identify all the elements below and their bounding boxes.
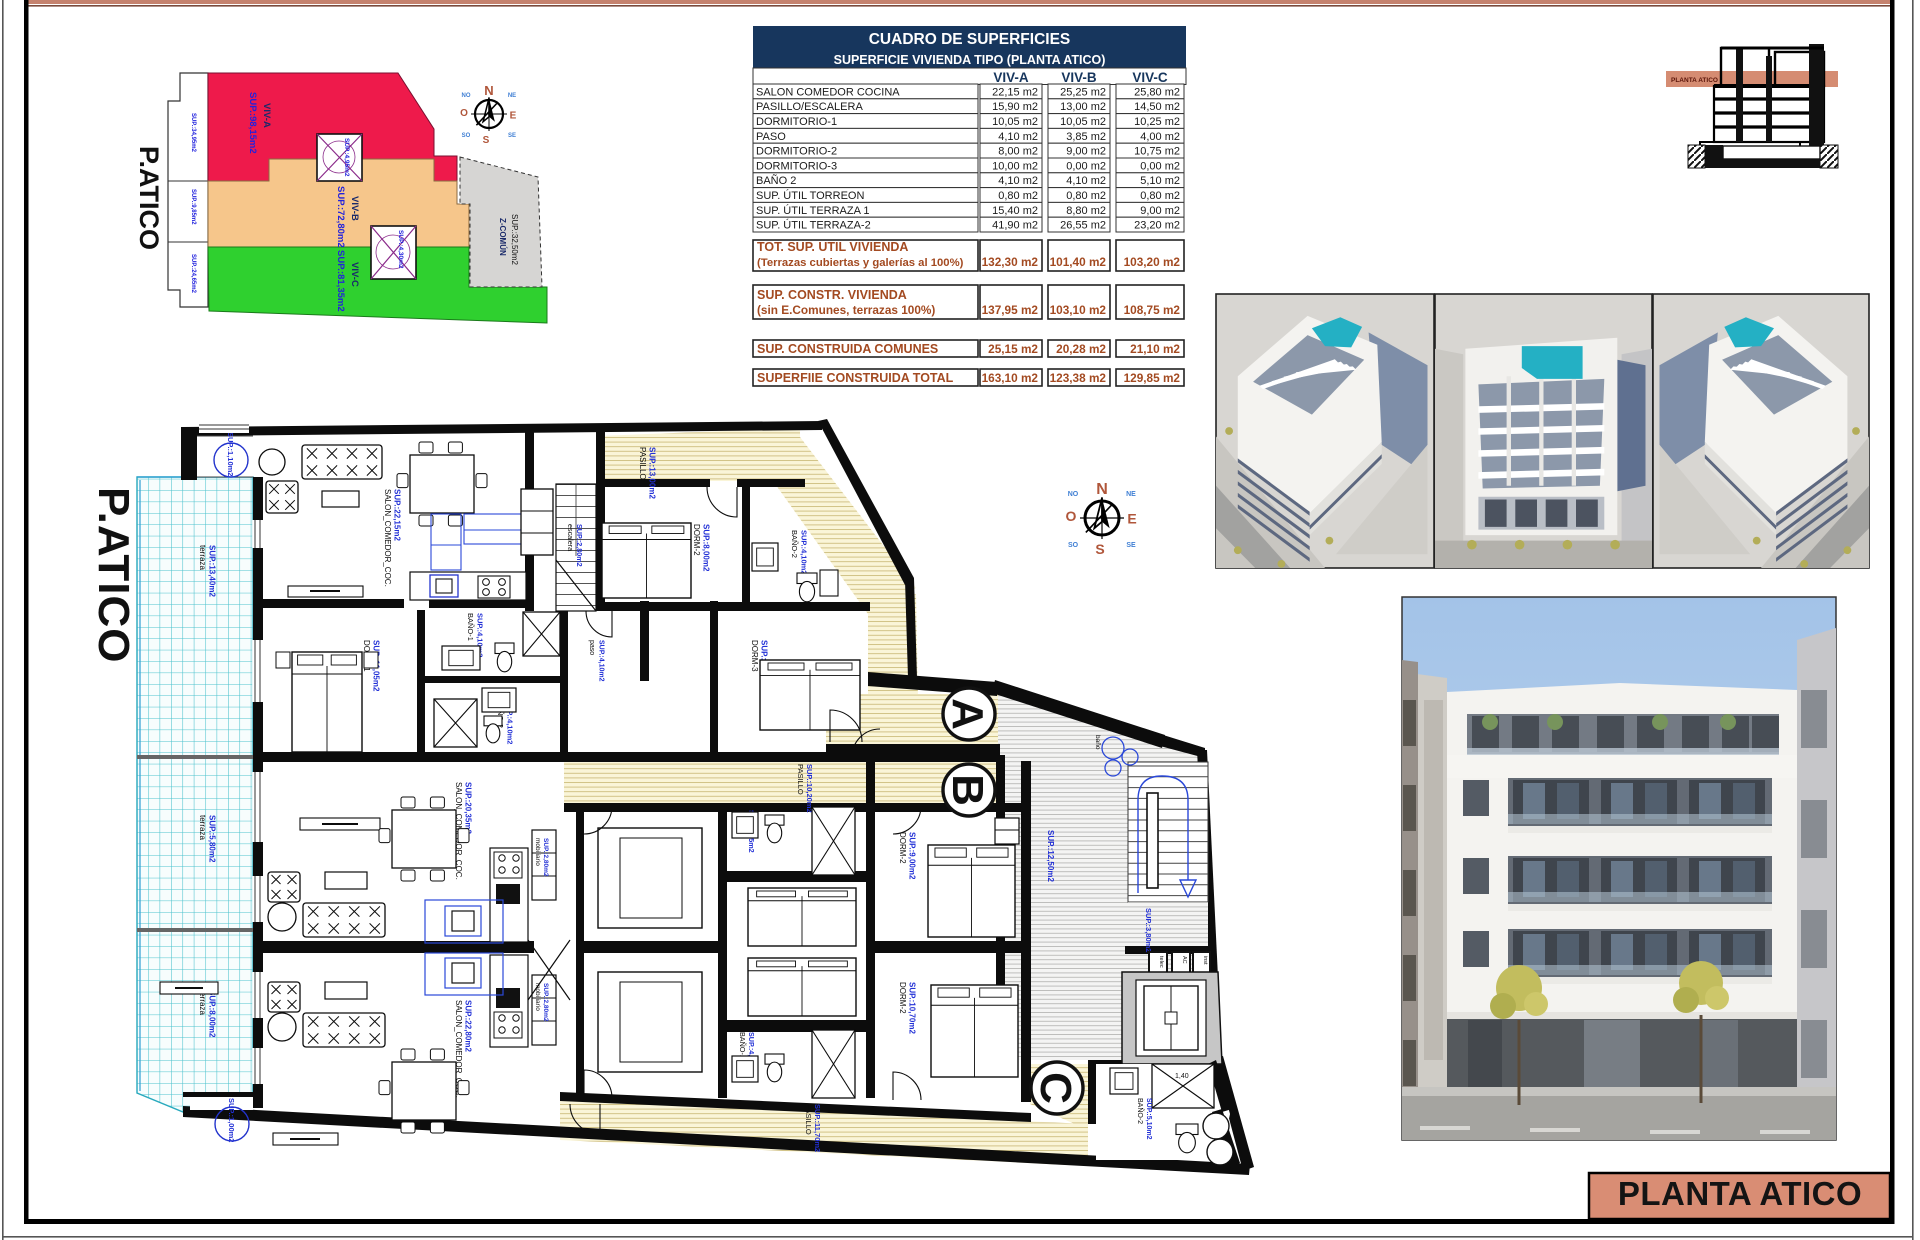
svg-text:SALON COMEDOR COCINA: SALON COMEDOR COCINA [756, 86, 900, 98]
svg-text:9,00 m2: 9,00 m2 [1066, 146, 1106, 158]
svg-text:SUP.:34,95m2: SUP.:34,95m2 [190, 113, 196, 153]
svg-text:26,55 m2: 26,55 m2 [1060, 220, 1106, 232]
svg-text:DORM-3: DORM-3 [750, 640, 759, 672]
svg-text:DORM-2: DORM-2 [898, 982, 907, 1014]
svg-text:SUP.:9,00m2: SUP.:9,00m2 [908, 832, 917, 880]
svg-text:25,25 m2: 25,25 m2 [1060, 86, 1106, 98]
svg-text:O: O [1066, 508, 1077, 524]
svg-text:VIV-A: VIV-A [993, 70, 1029, 85]
svg-text:3,85 m2: 3,85 m2 [1066, 131, 1106, 143]
svg-text:VIV-C: VIV-C [1132, 70, 1168, 85]
svg-text:SUP.:98,15m2: SUP.:98,15m2 [247, 92, 258, 154]
svg-text:SUP. CONSTR. VIVIENDA: SUP. CONSTR. VIVIENDA [757, 288, 907, 302]
svg-text:DORMITORIO-2: DORMITORIO-2 [756, 146, 837, 158]
svg-text:25,15 m2: 25,15 m2 [988, 342, 1038, 356]
svg-text:4,10 m2: 4,10 m2 [1066, 175, 1106, 187]
svg-text:SUP.:1,10m2: SUP.:1,10m2 [226, 432, 235, 476]
svg-text:SUP.:24,65m2: SUP.:24,65m2 [190, 254, 196, 294]
svg-text:SUP.:9,85m2: SUP.:9,85m2 [190, 189, 196, 225]
svg-text:SUP.:12,50m2: SUP.:12,50m2 [1046, 830, 1055, 882]
svg-text:SUP.:5,80m2: SUP.:5,80m2 [208, 815, 217, 863]
svg-text:terraza: terraza [198, 545, 207, 570]
svg-text:BAÑO-1: BAÑO-1 [466, 613, 475, 641]
svg-text:S: S [483, 135, 490, 146]
svg-text:VIV-A: VIV-A [261, 103, 272, 128]
svg-text:10,25 m2: 10,25 m2 [1134, 116, 1180, 128]
svg-text:inst: inst [1202, 956, 1208, 965]
svg-text:9,00 m2: 9,00 m2 [1140, 205, 1180, 217]
svg-text:129,85 m2: 129,85 m2 [1124, 371, 1181, 385]
svg-text:14,50 m2: 14,50 m2 [1134, 101, 1180, 113]
svg-text:SUP.:72,80m2: SUP.:72,80m2 [335, 186, 346, 248]
svg-text:SUP.:13,00m2: SUP.:13,00m2 [648, 447, 657, 499]
svg-text:DORM-2: DORM-2 [692, 524, 701, 556]
svg-text:SUP. ÚTIL TERRAZA 1: SUP. ÚTIL TERRAZA 1 [756, 204, 870, 217]
svg-text:SUP.:22,15m2: SUP.:22,15m2 [393, 489, 402, 541]
svg-text:SUP.:32,50m2: SUP.:32,50m2 [510, 214, 519, 266]
svg-text:NO: NO [1068, 491, 1079, 498]
svg-text:VIV-C: VIV-C [349, 262, 360, 287]
svg-text:20,28 m2: 20,28 m2 [1056, 342, 1106, 356]
svg-text:BAÑO-1: BAÑO-1 [738, 1032, 747, 1059]
svg-text:PASILLO: PASILLO [796, 764, 805, 795]
svg-text:137,95 m2: 137,95 m2 [982, 303, 1039, 317]
svg-text:VIV-B: VIV-B [349, 196, 360, 221]
svg-text:10,75 m2: 10,75 m2 [1134, 146, 1180, 158]
svg-text:escalera: escalera [566, 524, 575, 551]
svg-text:8,80 m2: 8,80 m2 [1066, 205, 1106, 217]
svg-text:mobiliario: mobiliario [534, 838, 541, 866]
svg-text:(Terrazas cubiertas y galerías: (Terrazas cubiertas y galerías al 100%) [757, 257, 964, 269]
svg-text:B: B [943, 774, 992, 806]
svg-text:(sin E.Comunes, terrazas 100%): (sin E.Comunes, terrazas 100%) [757, 303, 935, 317]
svg-text:25,80 m2: 25,80 m2 [1134, 86, 1180, 98]
svg-text:103,10 m2: 103,10 m2 [1050, 303, 1107, 317]
svg-text:0,00 m2: 0,00 m2 [1066, 160, 1106, 172]
svg-text:SUP.:3,80m2: SUP.:3,80m2 [1144, 908, 1153, 952]
svg-text:SUP. ÚTIL TERRAZA-2: SUP. ÚTIL TERRAZA-2 [756, 219, 871, 232]
svg-text:PASILLO: PASILLO [638, 447, 647, 480]
svg-text:E: E [1127, 511, 1136, 527]
svg-text:41,90 m2: 41,90 m2 [992, 220, 1038, 232]
svg-text:SUP. CONSTRUIDA COMUNES: SUP. CONSTRUIDA COMUNES [757, 342, 938, 356]
svg-text:SUP.:4,10m2: SUP.:4,10m2 [800, 530, 809, 574]
svg-text:NE: NE [1126, 491, 1136, 498]
svg-text:SO: SO [1068, 542, 1079, 549]
svg-text:SALON_COMEDOR_COC.: SALON_COMEDOR_COC. [383, 489, 392, 587]
svg-text:TOT. SUP. UTIL VIVIENDA: TOT. SUP. UTIL VIVIENDA [757, 240, 908, 254]
svg-text:N: N [484, 83, 493, 98]
svg-text:SUP.:2,80m2: SUP.:2,80m2 [575, 524, 584, 567]
svg-text:13,00 m2: 13,00 m2 [1060, 101, 1106, 113]
svg-text:DORM-2: DORM-2 [898, 832, 907, 864]
svg-text:SUP.:22,80m2: SUP.:22,80m2 [464, 1000, 473, 1052]
svg-text:BAÑO-2: BAÑO-2 [790, 530, 799, 558]
svg-text:5,10 m2: 5,10 m2 [1140, 175, 1180, 187]
svg-text:paso: paso [588, 640, 595, 655]
svg-text:SO: SO [462, 133, 471, 139]
svg-text:SUP.:5,10m2: SUP.:5,10m2 [1145, 1098, 1152, 1140]
svg-text:23,20 m2: 23,20 m2 [1134, 220, 1180, 232]
svg-text:22,15 m2: 22,15 m2 [992, 86, 1038, 98]
svg-text:DORMITORIO-1: DORMITORIO-1 [756, 116, 837, 128]
svg-text:SE: SE [1126, 542, 1136, 549]
svg-text:SUP.:2,80m2: SUP.:2,80m2 [542, 983, 549, 1022]
svg-text:SUP.:8,00m2: SUP.:8,00m2 [208, 990, 217, 1038]
svg-text:163,10 m2: 163,10 m2 [982, 371, 1039, 385]
svg-text:A: A [943, 698, 992, 730]
svg-text:15,40 m2: 15,40 m2 [992, 205, 1038, 217]
svg-text:SUP.:4,30m2: SUP.:4,30m2 [397, 230, 404, 269]
svg-text:SUPERFICIE VIVIENDA TIPO (PLA: SUPERFICIE VIVIENDA TIPO (PLANTA ATICO) [834, 53, 1106, 67]
svg-text:C: C [1031, 1072, 1080, 1104]
svg-text:1,40: 1,40 [1175, 1073, 1189, 1080]
svg-text:101,40 m2: 101,40 m2 [1050, 255, 1107, 269]
svg-text:SUP.:10,20m2: SUP.:10,20m2 [805, 764, 814, 813]
svg-text:4,00 m2: 4,00 m2 [1140, 131, 1180, 143]
svg-text:SUP.:11,70m2: SUP.:11,70m2 [813, 1104, 822, 1152]
svg-text:BAÑO-2: BAÑO-2 [1136, 1098, 1145, 1124]
svg-text:baño: baño [1094, 735, 1101, 750]
svg-text:4,10 m2: 4,10 m2 [998, 131, 1038, 143]
svg-text:N: N [1096, 481, 1108, 498]
svg-text:SUP.:20,35m2: SUP.:20,35m2 [464, 782, 473, 834]
svg-text:SUP.:81,35m2: SUP.:81,35m2 [335, 250, 346, 312]
svg-text:PASO: PASO [756, 131, 786, 143]
svg-text:NE: NE [508, 93, 516, 99]
svg-text:0,80 m2: 0,80 m2 [1140, 190, 1180, 202]
svg-text:SUP.:1,00m2: SUP.:1,00m2 [227, 1098, 236, 1142]
svg-text:NO: NO [462, 93, 471, 99]
svg-text:CUADRO DE SUPERFICIES: CUADRO DE SUPERFICIES [869, 31, 1071, 48]
svg-text:telec: telec [1158, 956, 1164, 968]
svg-text:0,80 m2: 0,80 m2 [1066, 190, 1106, 202]
svg-text:4,10 m2: 4,10 m2 [998, 175, 1038, 187]
svg-text:21,10 m2: 21,10 m2 [1130, 342, 1180, 356]
svg-text:E: E [510, 111, 517, 122]
svg-text:103,20 m2: 103,20 m2 [1124, 255, 1181, 269]
svg-text:15,90 m2: 15,90 m2 [992, 101, 1038, 113]
svg-text:132,30 m2: 132,30 m2 [982, 255, 1039, 269]
svg-text:AC: AC [1181, 956, 1187, 964]
svg-text:S: S [1095, 541, 1104, 557]
svg-text:10,05 m2: 10,05 m2 [992, 116, 1038, 128]
svg-text:P.ATICO: P.ATICO [89, 487, 138, 664]
svg-text:SUP.:8,00m2: SUP.:8,00m2 [702, 524, 711, 572]
svg-text:terraza: terraza [198, 815, 207, 840]
svg-text:8,00 m2: 8,00 m2 [998, 146, 1038, 158]
svg-text:PASILLO/ESCALERA: PASILLO/ESCALERA [756, 101, 863, 113]
svg-text:VIV-B: VIV-B [1061, 70, 1097, 85]
svg-text:PLANTA ATICO: PLANTA ATICO [1671, 77, 1718, 84]
svg-text:10,00 m2: 10,00 m2 [992, 160, 1038, 172]
svg-text:123,38 m2: 123,38 m2 [1050, 371, 1107, 385]
svg-text:10,05 m2: 10,05 m2 [1060, 116, 1106, 128]
svg-text:DORMITORIO-3: DORMITORIO-3 [756, 160, 837, 172]
svg-text:0,00 m2: 0,00 m2 [1140, 160, 1180, 172]
svg-text:PLANTA ATICO: PLANTA ATICO [1618, 1175, 1862, 1212]
svg-text:SUP.:4,10m2: SUP.:4,10m2 [598, 640, 605, 682]
svg-text:SUP. ÚTIL TORREON: SUP. ÚTIL TORREON [756, 189, 864, 202]
svg-text:0,80 m2: 0,80 m2 [998, 190, 1038, 202]
svg-text:O: O [460, 108, 468, 119]
svg-text:SUP.:10,70m2: SUP.:10,70m2 [908, 982, 917, 1034]
svg-text:SUPERFIIE CONSTRUIDA TOTAL: SUPERFIIE CONSTRUIDA TOTAL [757, 371, 954, 385]
svg-text:SUP.:4,95m2: SUP.:4,95m2 [343, 138, 350, 177]
svg-text:P.ATICO: P.ATICO [134, 146, 164, 250]
svg-text:108,75 m2: 108,75 m2 [1124, 303, 1181, 317]
svg-text:PASILLO: PASILLO [804, 1104, 813, 1135]
svg-text:Z-COMÚN: Z-COMÚN [498, 218, 507, 256]
svg-text:SUP.:2,80m2: SUP.:2,80m2 [542, 838, 549, 877]
svg-text:SUP.:13,40m2: SUP.:13,40m2 [208, 545, 217, 597]
svg-text:SE: SE [508, 133, 516, 139]
svg-text:BAÑO 2: BAÑO 2 [756, 174, 796, 187]
